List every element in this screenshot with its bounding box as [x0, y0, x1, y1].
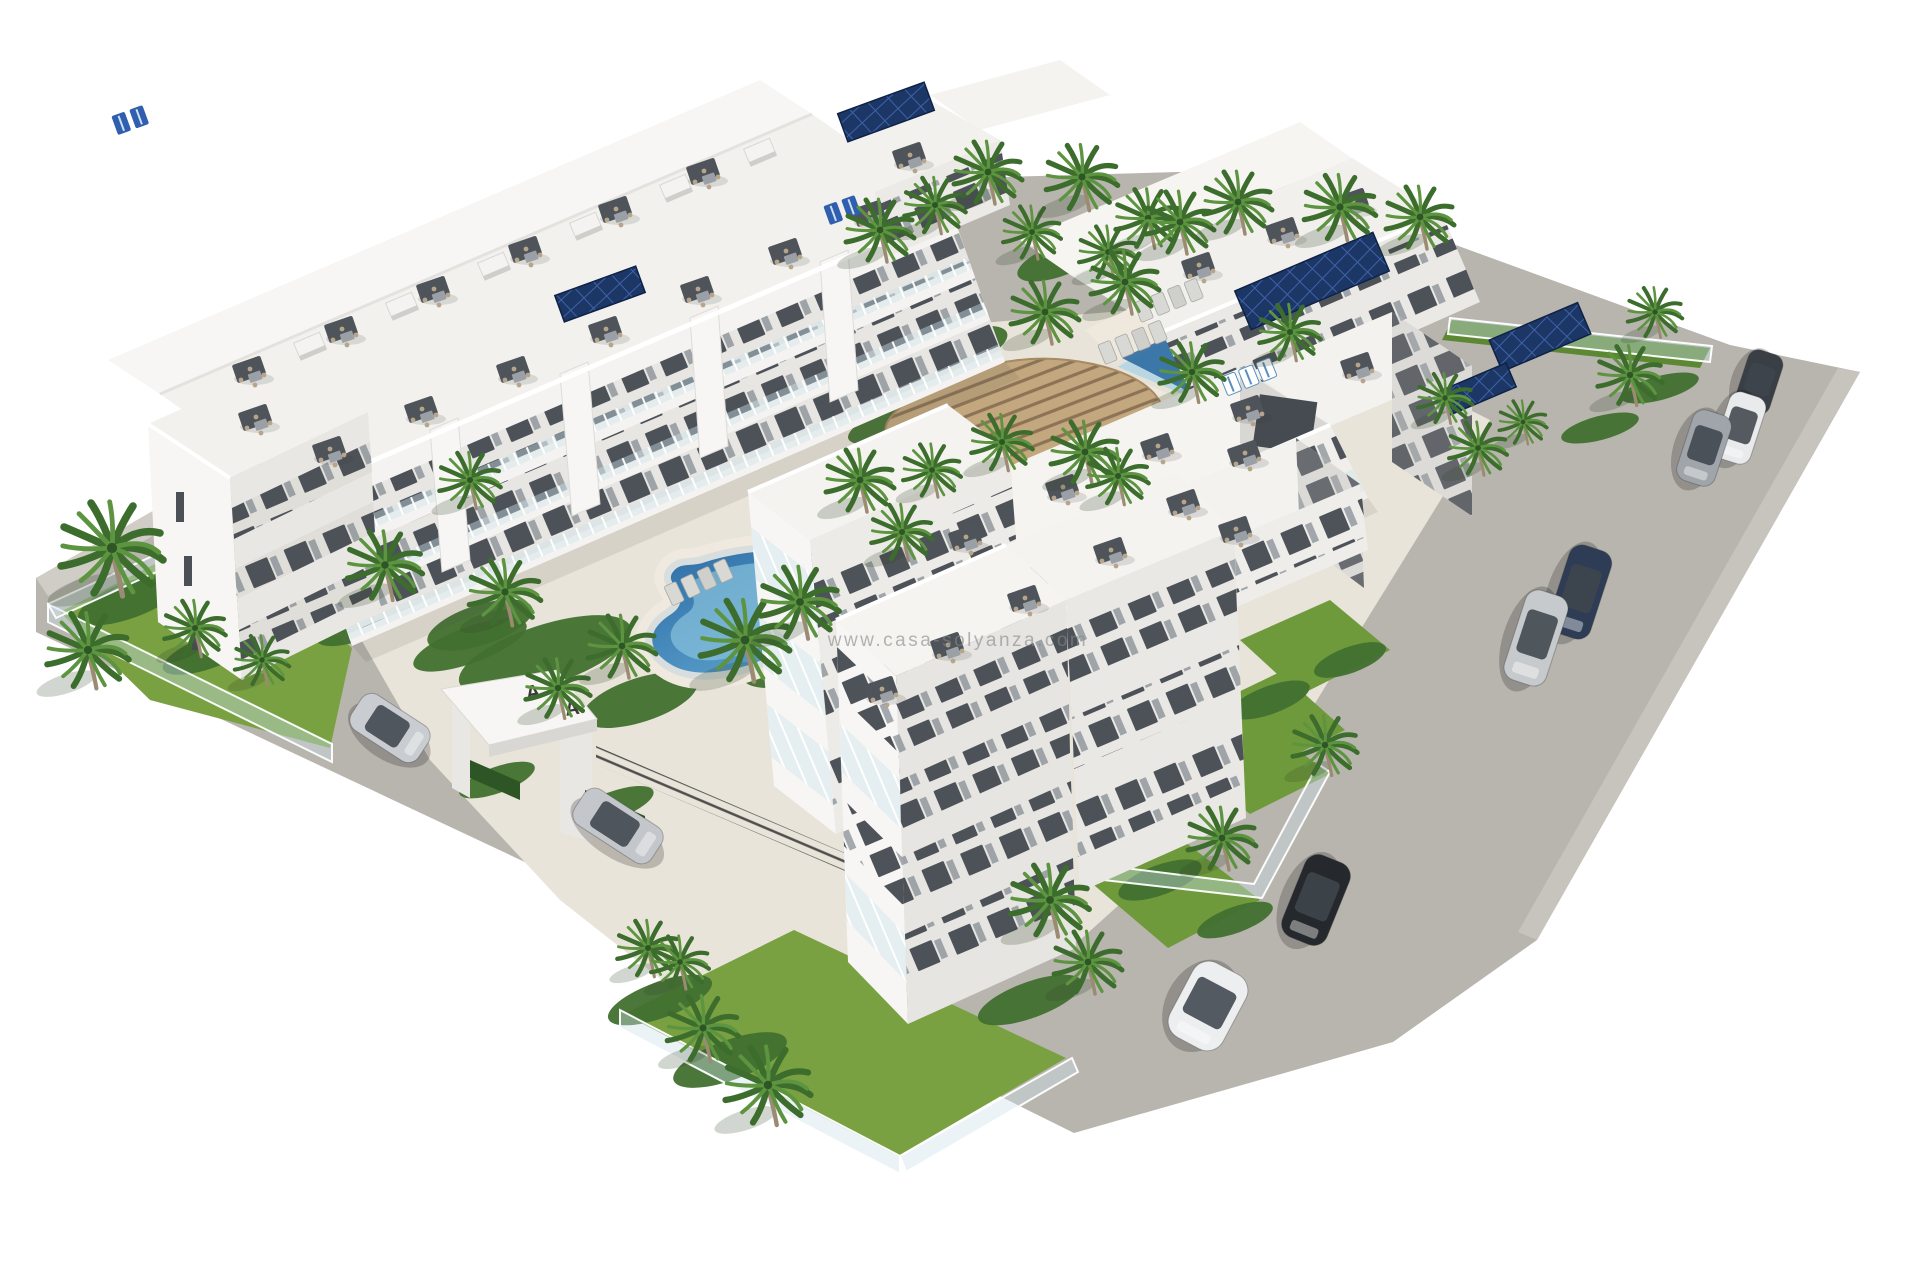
render-canvas: A A www.casa-solyanza.com: [0, 0, 1920, 1280]
watermark-text: www.casa-solyanza.com: [827, 630, 1089, 651]
blue-sun-loungers: [111, 105, 149, 135]
aerial-render: A A www.casa-solyanza.com: [0, 0, 1920, 1280]
